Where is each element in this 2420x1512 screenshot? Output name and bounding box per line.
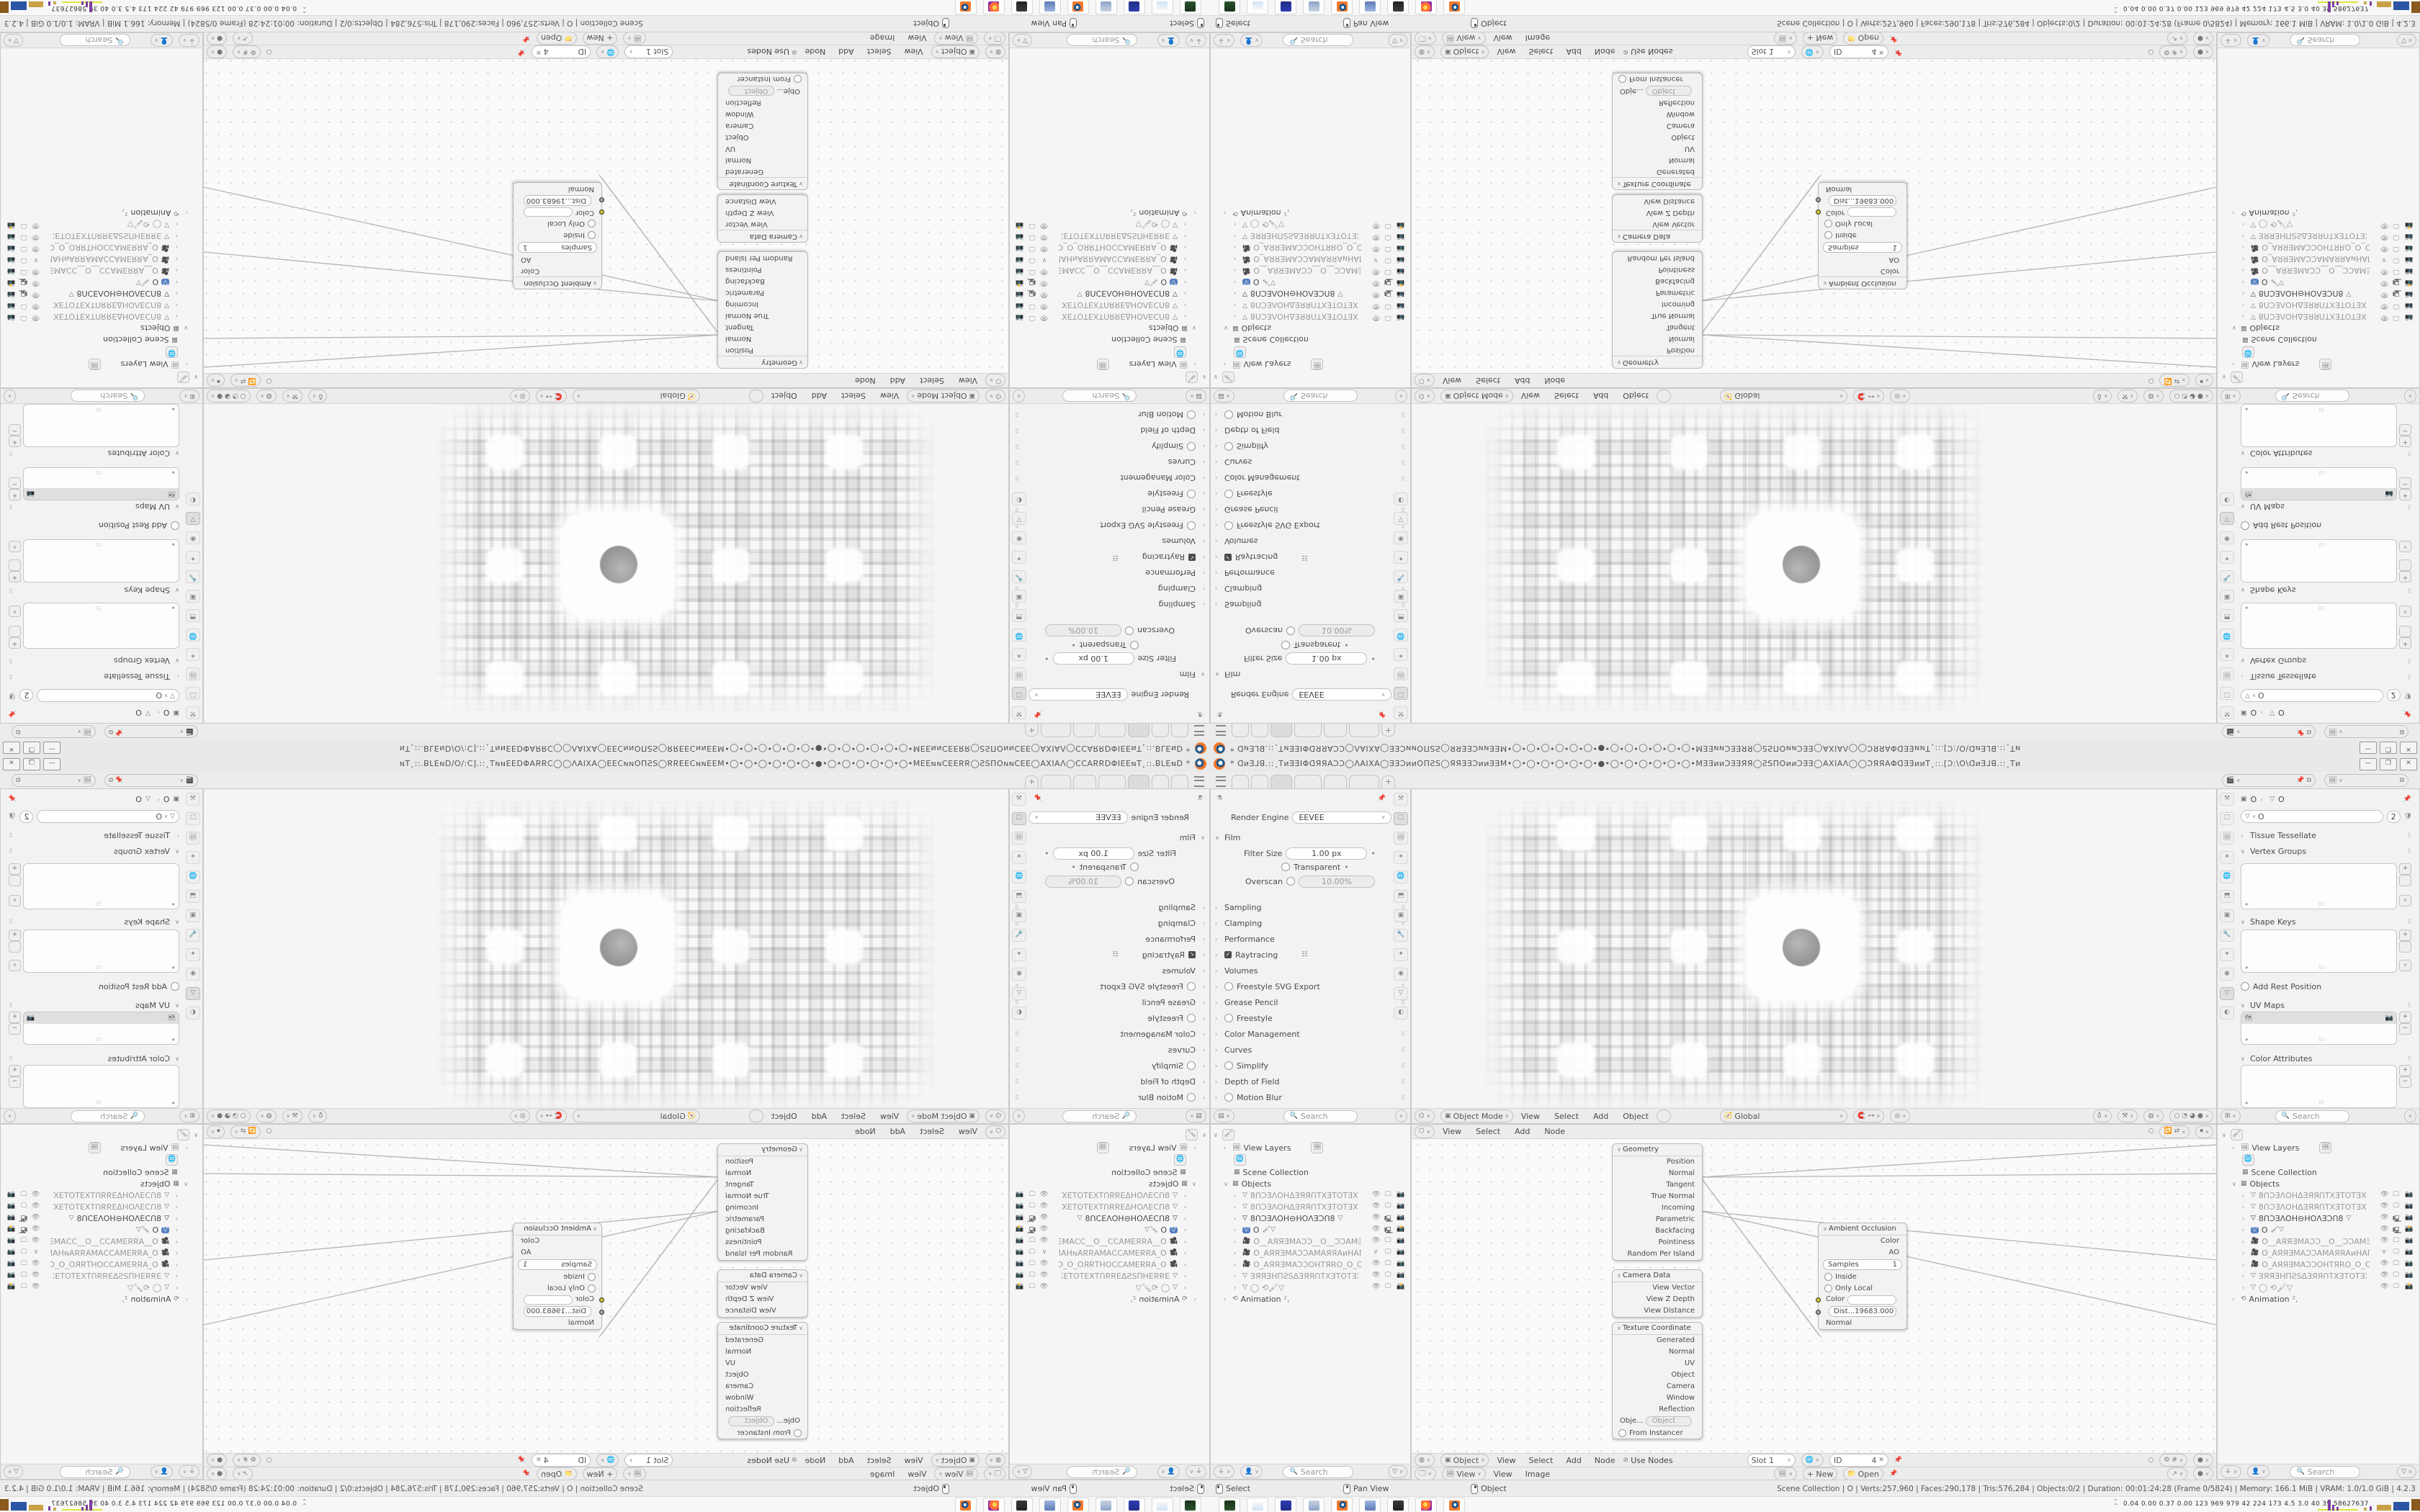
visibility-toggles[interactable]: 👁🖵📷 [1372,1237,1404,1244]
outliner-row[interactable]: ∨🖌 [1214,372,1234,383]
properties-tab-icon-4[interactable]: 🌐 [2220,870,2234,883]
disable-viewport-icon[interactable]: 🖳 [2393,1225,2400,1237]
expand-icon[interactable]: › [2242,1204,2248,1210]
disable-render-icon[interactable]: 📷 [1016,233,1023,240]
hide-eye-icon[interactable]: 👁 [2380,268,2388,275]
viewport-menu-object[interactable]: Object [769,392,799,401]
radio-icon[interactable] [1824,232,1832,240]
render-engine-dropdown[interactable]: EEVEE∨ [1292,811,1391,824]
workspace-tab-2[interactable] [1152,723,1169,737]
properties-tab-icon-8[interactable]: ✦ [1394,948,1408,961]
disable-viewport-icon[interactable]: 🖵 [1028,222,1036,229]
disable-viewport-icon[interactable]: 🖳 [20,287,27,298]
properties-tab-icon-4[interactable]: 🌐 [1394,629,1408,642]
outliner-row[interactable]: ›▽ƎЯЯƎHΠƧSΔƎЯЯꓵTXƎTOTƎXT [1062,230,1186,242]
disable-render-icon[interactable]: 📷 [1016,302,1023,310]
menu-view[interactable]: View [1440,1127,1464,1136]
ao-only-local-toggle[interactable]: Only Local [514,218,601,230]
properties-tab-icon-8[interactable]: ✦ [2220,948,2234,961]
properties-tab-icon-9[interactable]: ◉ [2220,968,2234,981]
image-editor-type-button[interactable]: 🗔∨ [984,1467,1005,1480]
close-button[interactable]: ✕ [2400,742,2417,754]
film-panel[interactable]: Film [1180,670,1196,680]
expand-icon[interactable]: › [172,1261,178,1268]
hide-eye-icon[interactable]: 👁 [1372,1225,1379,1237]
hide-eye-icon[interactable]: 👁 [1372,245,1379,252]
hide-eye-icon[interactable]: 👁 [2380,314,2388,321]
uv-select-widget[interactable]: ↗∨ [233,32,253,45]
node-output-window[interactable]: Window [1613,1392,1702,1404]
uv-maps-panel[interactable]: UV Maps [135,1001,170,1010]
outliner-row[interactable]: ›🖼View Layers🖼 [89,359,188,370]
node-output-generated[interactable]: Generated [1613,1335,1702,1346]
vgroup-menu-button[interactable]: ∨ [2399,606,2411,617]
socket-color[interactable] [599,210,604,215]
circle-toggle[interactable]: ○ [2148,377,2154,384]
node-header[interactable]: ∨Texture Coordinate [1613,177,1702,189]
panel-simplify[interactable]: ›Simplify⠿ [1211,440,1410,453]
workspace-tab-3[interactable] [1270,775,1292,789]
properties-tab-icon-10[interactable]: ▽ [2220,987,2234,1000]
node-camera-data[interactable]: ∨Camera DataView VectorView Z DepthView … [1612,194,1703,243]
outliner-row[interactable]: ∨▦Objects [1224,323,1271,334]
visibility-toggles[interactable]: 👁🖵📷 [2380,268,2412,275]
outliner-row[interactable]: ›▽8ꓵƆƎΛOH⊖HOΛƎƆꓵ8▽ [2242,1212,2351,1224]
transform-orientation-dropdown[interactable]: 🧭 Global∨ [1720,1110,1847,1122]
hide-eye-icon[interactable]: 👁 [2380,1272,2388,1279]
visibility-toggles[interactable]: 👁🖵📷 [2380,1272,2412,1279]
panel-performance[interactable]: ›Performance⠿ [1010,567,1209,580]
scene-selector[interactable]: 🎬∨ 📌 ⧉ [2222,774,2316,787]
shader-node-editor[interactable]: ⬡∨ ViewSelectAddNode ○ 🔁⇄∨ ⏺∨ [203,1124,1009,1480]
properties-tab-icon-1[interactable]: 🖵 [2220,687,2234,700]
properties-tab-icon-9[interactable]: ◉ [186,531,200,544]
filter-id-menu[interactable]: 👤∨ [1240,1465,1263,1478]
disable-viewport-icon[interactable]: 🖳 [1384,1225,1391,1237]
visibility-toggles[interactable]: 👁🖵📷 [1372,314,1404,321]
uvmap-remove-button[interactable]: − [9,477,21,489]
tissue-tessellate-panel[interactable]: Tissue Tessellate [2250,831,2316,840]
overscan-toggle[interactable] [1286,626,1295,635]
node-header[interactable]: ∨Geometry [1613,356,1702,368]
radio-icon[interactable] [1618,1429,1626,1437]
chevron-icon[interactable]: ∨ [2380,1248,2388,1256]
disable-viewport-icon[interactable]: 🖵 [2393,1272,2400,1279]
panel-checkbox[interactable] [1224,521,1233,530]
expand-icon[interactable]: › [1234,302,1240,309]
outliner-row[interactable]: ∨▦Objects [1149,1178,1196,1189]
visibility-toggles[interactable]: 👁🖳📸 [2380,1225,2412,1237]
hide-eye-icon[interactable]: 👁 [1041,245,1048,252]
properties-tab-icon-7[interactable]: 🔧 [1394,929,1408,942]
properties-tab-icon-2[interactable]: 🖼 [2220,832,2234,845]
node-output-incoming[interactable]: Incoming [718,298,807,310]
vgroup-add-button[interactable]: + [9,637,21,649]
properties-tab-icon-3[interactable]: ✶ [1012,648,1026,661]
outliner-row[interactable]: ›▽8ꓵƆƎΛOHΔƎЯЯꓵTXƎTOTƎXT [1234,311,1358,323]
add-workspace-tab[interactable]: + [1381,723,1395,737]
visibility-toggles[interactable]: 👁🖵📷 [1016,1237,1048,1244]
properties-tab-icon-6[interactable]: ▣ [1012,590,1026,603]
uvmap-render-camera-icon[interactable]: 📷 [27,1015,35,1022]
disable-render-icon[interactable]: 📸 [1016,1283,1023,1290]
properties-tab-icon-3[interactable]: ✶ [1394,648,1408,661]
panel-sampling[interactable]: ›Sampling⠿ [1211,598,1410,611]
node-header[interactable]: ∨Ambient Occlusion [1819,276,1906,289]
outliner-row[interactable]: ›🎥O__AЯЯƎMAƆƆ__O__ƆƆAMƎ [50,265,178,276]
expand-icon[interactable]: › [2242,1192,2248,1199]
expand-icon[interactable]: › [1180,1204,1186,1210]
expand-icon[interactable]: › [2232,1296,2238,1302]
properties-tab-icon-6[interactable]: ▣ [186,590,200,603]
visibility-toggles[interactable]: 👁🖵📷 [1372,233,1404,240]
outliner-row[interactable]: ›🎥O_AЯЯƎMAƆƆOHTЯRO_O_OЯЯTH [1059,242,1186,253]
image-open-button[interactable]: 📁Open [1843,1467,1883,1480]
hide-eye-icon[interactable]: 👁 [1041,275,1048,287]
disable-viewport-icon[interactable]: 🖵 [1028,302,1036,310]
visibility-toggles[interactable]: 👁🖵📸 [1372,1283,1404,1290]
expand-icon[interactable]: › [1234,233,1240,240]
node-header[interactable]: ∨Ambient Occlusion [514,1223,601,1236]
properties-tab-icon-4[interactable]: 🌐 [186,870,200,883]
hide-eye-icon[interactable]: 👁 [1372,233,1379,240]
node-camera-data[interactable]: ∨Camera DataView VectorView Z DepthView … [717,1269,808,1318]
outliner-row[interactable]: ›▽◯ ⟲🖌▽ [1234,1282,1284,1293]
visibility-toggles[interactable]: 👁🖵📷 [1016,302,1048,310]
outliner-row[interactable]: ›▽ƎЯЯƎHΠƧSΔƎЯЯꓵTXƎTOTƎXT [1234,1270,1358,1282]
shader-node-editor[interactable]: ⬡∨ ViewSelectAddNode ○ 🔁⇄∨ ⏺∨ [1411,32,2217,388]
texcoord-object-row[interactable]: Obje...Object [1613,1416,1702,1427]
hide-eye-icon[interactable]: 👁 [1041,302,1048,310]
expand-icon[interactable]: › [2242,314,2248,320]
filter-funnel-menu[interactable]: ▽∨ [2397,1465,2416,1478]
outliner-row[interactable]: ›▽8ꓵƆƎΛOHΔƎЯЯꓵTXƎTOTƎXT [1234,1201,1358,1212]
outliner-search-input[interactable]: 🔍Search [2290,1466,2360,1478]
node-output-normal[interactable]: Normal [718,333,807,344]
disable-viewport-icon[interactable]: 🖵 [2393,1191,2400,1198]
node-output-true-normal[interactable]: True Normal [1613,310,1702,321]
node-output-reflection[interactable]: Reflection [1613,1404,1702,1416]
image-view-dropdown[interactable]: 🖼View∨ [934,1467,978,1480]
disable-render-icon[interactable]: 📷 [1016,1202,1023,1210]
snap-widget[interactable]: 🧲⊶∨ [536,390,567,402]
disable-render-icon[interactable]: 📷 [1397,314,1404,321]
filter-id-menu[interactable]: 👤∨ [2247,34,2269,47]
circle-toggle[interactable]: ○ [2148,49,2154,55]
node-output-uv[interactable]: UV [718,143,807,154]
node-output-reflection[interactable]: Reflection [718,1404,807,1416]
taskbar-app-calculator[interactable] [1303,0,1325,14]
properties-tab-icon-3[interactable]: ✶ [2220,851,2234,864]
outliner-row[interactable]: ▦Scene Collection [1111,1166,1186,1178]
disable-render-icon[interactable]: 📷 [1397,233,1404,240]
node-output-normal[interactable]: Normal [718,1168,807,1179]
properties-tab-icon-2[interactable]: 🖼 [1012,832,1026,845]
expand-icon[interactable]: › [182,210,188,217]
disable-render-icon[interactable]: 📸 [8,222,15,229]
disable-viewport-icon[interactable]: 🖵 [1028,233,1036,240]
properties-tab-icon-11[interactable]: ◐ [2220,492,2234,505]
disable-viewport-icon[interactable]: 🖵 [1028,1272,1036,1279]
node-output-color[interactable]: Color [1819,265,1906,276]
disable-viewport-icon[interactable]: 🖵 [1028,1191,1036,1198]
hide-eye-icon[interactable]: 👁 [32,302,40,310]
properties-search-input[interactable]: 🔍 Search [1062,1110,1137,1122]
expand-icon[interactable]: › [2242,291,2248,297]
disable-render-icon[interactable]: 📷 [1016,314,1023,321]
outliner-row[interactable]: ›🖼View Layers🖼 [1224,1142,1323,1153]
properties-tab-icon-11[interactable]: ◐ [2220,1007,2234,1020]
menu-select[interactable]: Select [1474,376,1502,385]
expand-icon[interactable]: › [172,279,178,286]
properties-tab-icon-9[interactable]: ◉ [1012,968,1026,981]
visibility-toggles[interactable]: 👁🖵📷 [1372,245,1404,252]
menu-select[interactable]: Select [865,48,894,57]
add-rest-position-checkbox[interactable] [2241,521,2249,530]
shapekey-specials-button[interactable] [2399,941,2411,953]
shapekey-menu-button[interactable]: ∨ [9,960,21,971]
outliner-row[interactable]: ∨▦Objects [140,1178,188,1189]
proportional-edit-widget[interactable]: ◎∨ [1890,390,1910,402]
outliner-row[interactable]: ›▽O🖌▽ [136,276,178,288]
blank-toggle[interactable] [1657,390,1671,402]
menu-add[interactable]: Add [836,48,856,57]
transform-orientation-dropdown[interactable]: 🧭 Global∨ [573,1110,700,1122]
image-open-button[interactable]: 📁Open [1843,32,1883,45]
viewport-menu-object[interactable]: Object [1621,1112,1651,1121]
properties-tab-icon-11[interactable]: ◐ [1012,1007,1026,1020]
breadcrumb-mesh[interactable]: O [135,708,142,718]
xray-toggle[interactable]: ◍∨ [2143,1110,2164,1122]
panel-checkbox[interactable]: ✓ [1188,554,1196,561]
menu-select[interactable]: Select [918,376,946,385]
visibility-toggles[interactable]: ∨🖵📷 [1016,1248,1048,1256]
node-output-pointiness[interactable]: Pointiness [718,264,807,275]
hide-eye-icon[interactable]: 👁 [1372,302,1379,310]
pin-icon[interactable]: 📌 [1378,710,1386,717]
disable-viewport-icon[interactable]: 🖳 [1028,287,1036,298]
expand-icon[interactable]: › [172,302,178,309]
outliner-row[interactable]: ›▽◯ ⟲🖌▽ [2242,1282,2293,1293]
taskbar-app-monitor[interactable] [1387,0,1409,14]
taskbar-app-firefox[interactable] [1415,0,1437,14]
properties-filter-menu[interactable]: ⊞∨ [179,390,200,402]
panel-checkbox[interactable] [1187,442,1196,451]
radio-icon[interactable] [1618,76,1626,84]
outliner-row[interactable]: ›🎥O__AЯЯƎMAƆƆ__O__ƆƆAMƎ [1234,265,1361,276]
filter-display-menu[interactable]: ⏚∨ [179,34,200,47]
taskbar-app-blender[interactable] [1067,0,1089,14]
shapekey-add-button[interactable]: + [9,571,21,582]
node-output-view-distance[interactable]: View Distance [718,1305,807,1317]
hide-eye-icon[interactable]: 👁 [1041,268,1048,275]
properties-tab-icon-4[interactable]: 🌐 [1394,870,1408,883]
ao-samples-field[interactable]: Samples1 [518,242,597,253]
menu-hamburger-icon[interactable] [1194,725,1204,736]
copy-icon[interactable]: ⧉ [2307,729,2311,735]
visibility-toggles[interactable]: 👁🖵📷 [1372,1202,1404,1210]
menu-add[interactable]: Add [836,1456,856,1465]
hide-eye-icon[interactable]: 👁 [1372,1214,1379,1225]
gizmo-toggle[interactable]: ♁∨ [308,390,328,402]
properties-tab-icon-5[interactable]: ⬒ [1394,890,1408,903]
outliner-row[interactable]: ›▽◯ ⟲🖌▽ [1136,219,1186,230]
use-nodes-check-icon[interactable]: ⊘ [1623,1457,1629,1464]
node-output-view-z-depth[interactable]: View Z Depth [1613,207,1702,218]
viewport-3d[interactable]: ⌬∨ ▣Object Mode∨ ViewSelectAddObject 🧭 G… [1411,388,2217,724]
pin-icon[interactable]: 📌 [1034,710,1042,717]
visibility-toggles[interactable]: 👁🖵📷 [1016,245,1048,252]
overscan-toggle[interactable] [1125,626,1134,635]
uvmap-add-button[interactable]: + [2399,489,2411,500]
visibility-toggles[interactable]: 👁🖳📸 [2380,275,2412,287]
visibility-toggles[interactable]: 👁🖵📷 [1372,1272,1404,1279]
disable-viewport-icon[interactable]: 🖳 [20,1214,27,1225]
hide-eye-icon[interactable]: 👁 [1041,1214,1048,1225]
hide-eye-icon[interactable]: 👁 [2380,275,2388,287]
hide-eye-icon[interactable]: 👁 [1372,275,1379,287]
disable-render-icon[interactable]: 📷 [2405,1191,2412,1198]
outliner-row[interactable]: ›▽ƎЯЯƎHΠƧSΔƎЯЯꓵTXƎTOTƎXT [53,1270,178,1282]
disable-render-icon[interactable]: 📸 [2405,1283,2412,1290]
workspace-tab-1[interactable] [1232,723,1249,737]
taskbar-app-notepad[interactable] [1247,1498,1268,1512]
socket-value[interactable] [599,197,604,202]
outliner-row[interactable]: ›▽O🖌▽ [1144,276,1186,288]
expand-icon[interactable]: › [172,1192,178,1199]
properties-search-input[interactable]: 🔍 Search [1283,1110,1358,1122]
image-open-button[interactable]: 📁Open [537,1467,577,1480]
copy-icon[interactable]: ⧉ [16,729,20,735]
outliner-row[interactable]: 🌐 [1234,1154,1246,1166]
world-icon[interactable]: 🌐 [1234,1154,1246,1166]
disable-render-icon[interactable]: 📷 [2405,1214,2412,1225]
properties-tab-icon-3[interactable]: ✶ [1394,851,1408,864]
disable-viewport-icon[interactable]: 🖳 [20,1225,27,1237]
node-output-window[interactable]: Window [718,1392,807,1404]
menu-hamburger-icon[interactable] [1194,776,1204,787]
outliner-row[interactable]: ∨▦Objects [2232,1178,2280,1189]
color-attributes-panel[interactable]: Color Attributes [107,449,170,459]
shader-type-button[interactable]: ◍∨ [1415,1454,1435,1467]
expand-icon[interactable]: › [2242,233,2248,240]
add-workspace-tab[interactable]: + [1025,723,1039,737]
expand-icon[interactable]: › [172,314,178,320]
restore-button[interactable]: ❐ [23,742,40,754]
visibility-toggles[interactable]: 👁🖵📸 [1016,1283,1048,1290]
hide-eye-icon[interactable]: 👁 [1041,287,1048,298]
outliner-row[interactable]: ›▽ƎЯЯƎHΠƧSΔƎЯЯꓵTXƎTOTƎXT [53,230,178,242]
outliner-row[interactable]: ›▽8ꓵƆƎΛOHΔƎЯЯꓵTXƎTOTƎXT [2242,300,2367,311]
panel-motion-blur[interactable]: ›Motion Blur⠿ [1010,1091,1209,1104]
viewport-menu-add[interactable]: Add [1591,1112,1610,1121]
material-id-field[interactable]: ID 4 ✕ [1829,45,1888,58]
workspace-tab-2[interactable] [1251,723,1268,737]
film-panel[interactable]: Film [1180,833,1196,842]
panel-simplify[interactable]: ›Simplify⠿ [1010,440,1209,453]
properties-filter-menu[interactable]: ▤∨ [1186,1110,1206,1122]
visibility-toggles[interactable]: 👁🖳📸 [1016,1225,1048,1237]
properties-tab-icon-0[interactable]: ⚒ [2220,793,2234,806]
taskbar-app-floppy64[interactable] [1124,1498,1145,1512]
expand-icon[interactable]: › [1234,1273,1240,1279]
radio-icon[interactable] [588,1273,596,1281]
visibility-toggles[interactable]: 👁🖵📷 [8,245,40,252]
hide-eye-icon[interactable]: 👁 [32,1237,40,1244]
menu-node[interactable]: Node [853,376,878,385]
world-icon[interactable]: 🌐 [1174,346,1186,358]
hide-eye-icon[interactable]: 👁 [1372,1260,1379,1267]
overlays-widget[interactable]: ⏺∨ [207,1125,225,1138]
expand-icon[interactable]: › [1234,256,1240,263]
expand-icon[interactable]: › [172,1238,178,1245]
node-output-camera[interactable]: Camera [718,1381,807,1392]
outliner-row[interactable]: ›🎥O__AЯЯƎMAƆƆ__O__ƆƆAMƎ [50,1236,178,1247]
disable-viewport-icon[interactable]: 🖵 [1384,222,1391,229]
properties-tab-icon-6[interactable]: ▣ [186,909,200,922]
disable-render-icon[interactable]: 📸 [2405,275,2412,287]
disable-viewport-icon[interactable]: 🖵 [20,1237,27,1244]
shape-keys-panel[interactable]: Shape Keys [124,917,170,927]
ao-color-input[interactable]: Color [1819,207,1906,218]
disable-viewport-icon[interactable]: 🖳 [2393,287,2400,298]
shapekey-specials-button[interactable] [2399,559,2411,571]
expand-icon[interactable]: › [1191,210,1196,217]
add-rest-position-checkbox[interactable] [171,982,179,991]
taskbar-app-monitor[interactable] [1387,1498,1409,1512]
add-workspace-tab[interactable]: + [1025,775,1039,789]
outliner-row[interactable]: ›▽O🖌▽ [1234,276,1276,288]
taskbar-app-firefox[interactable] [983,1498,1005,1512]
properties-tab-icon-8[interactable]: ✦ [186,551,200,564]
menu-node[interactable]: Node [1592,48,1618,57]
panel-depth-of-field[interactable]: ›Depth of Field⠿ [1010,1075,1209,1088]
expand-icon[interactable]: › [1234,245,1240,251]
visibility-toggles[interactable]: 👁🖳📷 [1016,287,1048,298]
node-output-tangent[interactable]: Tangent [1613,1179,1702,1191]
disable-render-icon[interactable]: 📸 [1016,275,1023,287]
disable-viewport-icon[interactable]: 🖵 [2393,302,2400,310]
radio-icon[interactable] [794,1429,802,1437]
image-new-button[interactable]: + New [1803,1467,1838,1480]
node-header[interactable]: ∨Ambient Occlusion [1819,1223,1906,1236]
restore-button[interactable]: ❐ [2380,758,2397,770]
hide-eye-icon[interactable]: 👁 [32,1202,40,1210]
properties-tab-icon-10[interactable]: ▽ [1012,987,1026,1000]
node-ambient-occlusion[interactable]: ∨Ambient OcclusionColorAOSamples1InsideO… [513,1223,602,1330]
properties-tab-icon-4[interactable]: 🌐 [186,629,200,642]
visibility-toggles[interactable]: 👁🖳📸 [8,275,40,287]
transparent-checkbox[interactable] [1281,641,1290,649]
outliner-row[interactable]: ›🖼View Layers🖼 [2232,1142,2331,1153]
viewport-menu-select[interactable]: Select [839,392,868,401]
image-browse-button[interactable]: 🖼∨ [623,32,646,45]
panel-sampling[interactable]: ›Sampling⠿ [1211,901,1410,914]
expand-icon[interactable]: › [1180,302,1186,309]
properties-tab-icon-1[interactable]: 🖵 [2220,812,2234,825]
disable-render-icon[interactable]: 📸 [1397,1225,1404,1237]
taskbar-app-floppy64[interactable] [1275,1498,1296,1512]
disable-viewport-icon[interactable]: 🖵 [1384,1248,1391,1256]
hide-eye-icon[interactable]: 👁 [1041,1260,1048,1267]
disable-render-icon[interactable]: 📷 [2405,314,2412,321]
expand-icon[interactable]: › [1234,1215,1240,1222]
menu-select[interactable]: Select [1474,1127,1502,1136]
outliner-search-input[interactable]: 🔍Search [60,35,130,47]
disable-render-icon[interactable]: 📷 [8,1191,15,1198]
disable-render-icon[interactable]: 📷 [1016,1260,1023,1267]
outliner-row[interactable]: ›▽8ꓵƆƎΛOH⊖HOΛƎƆꓵ8▽ [69,288,178,300]
